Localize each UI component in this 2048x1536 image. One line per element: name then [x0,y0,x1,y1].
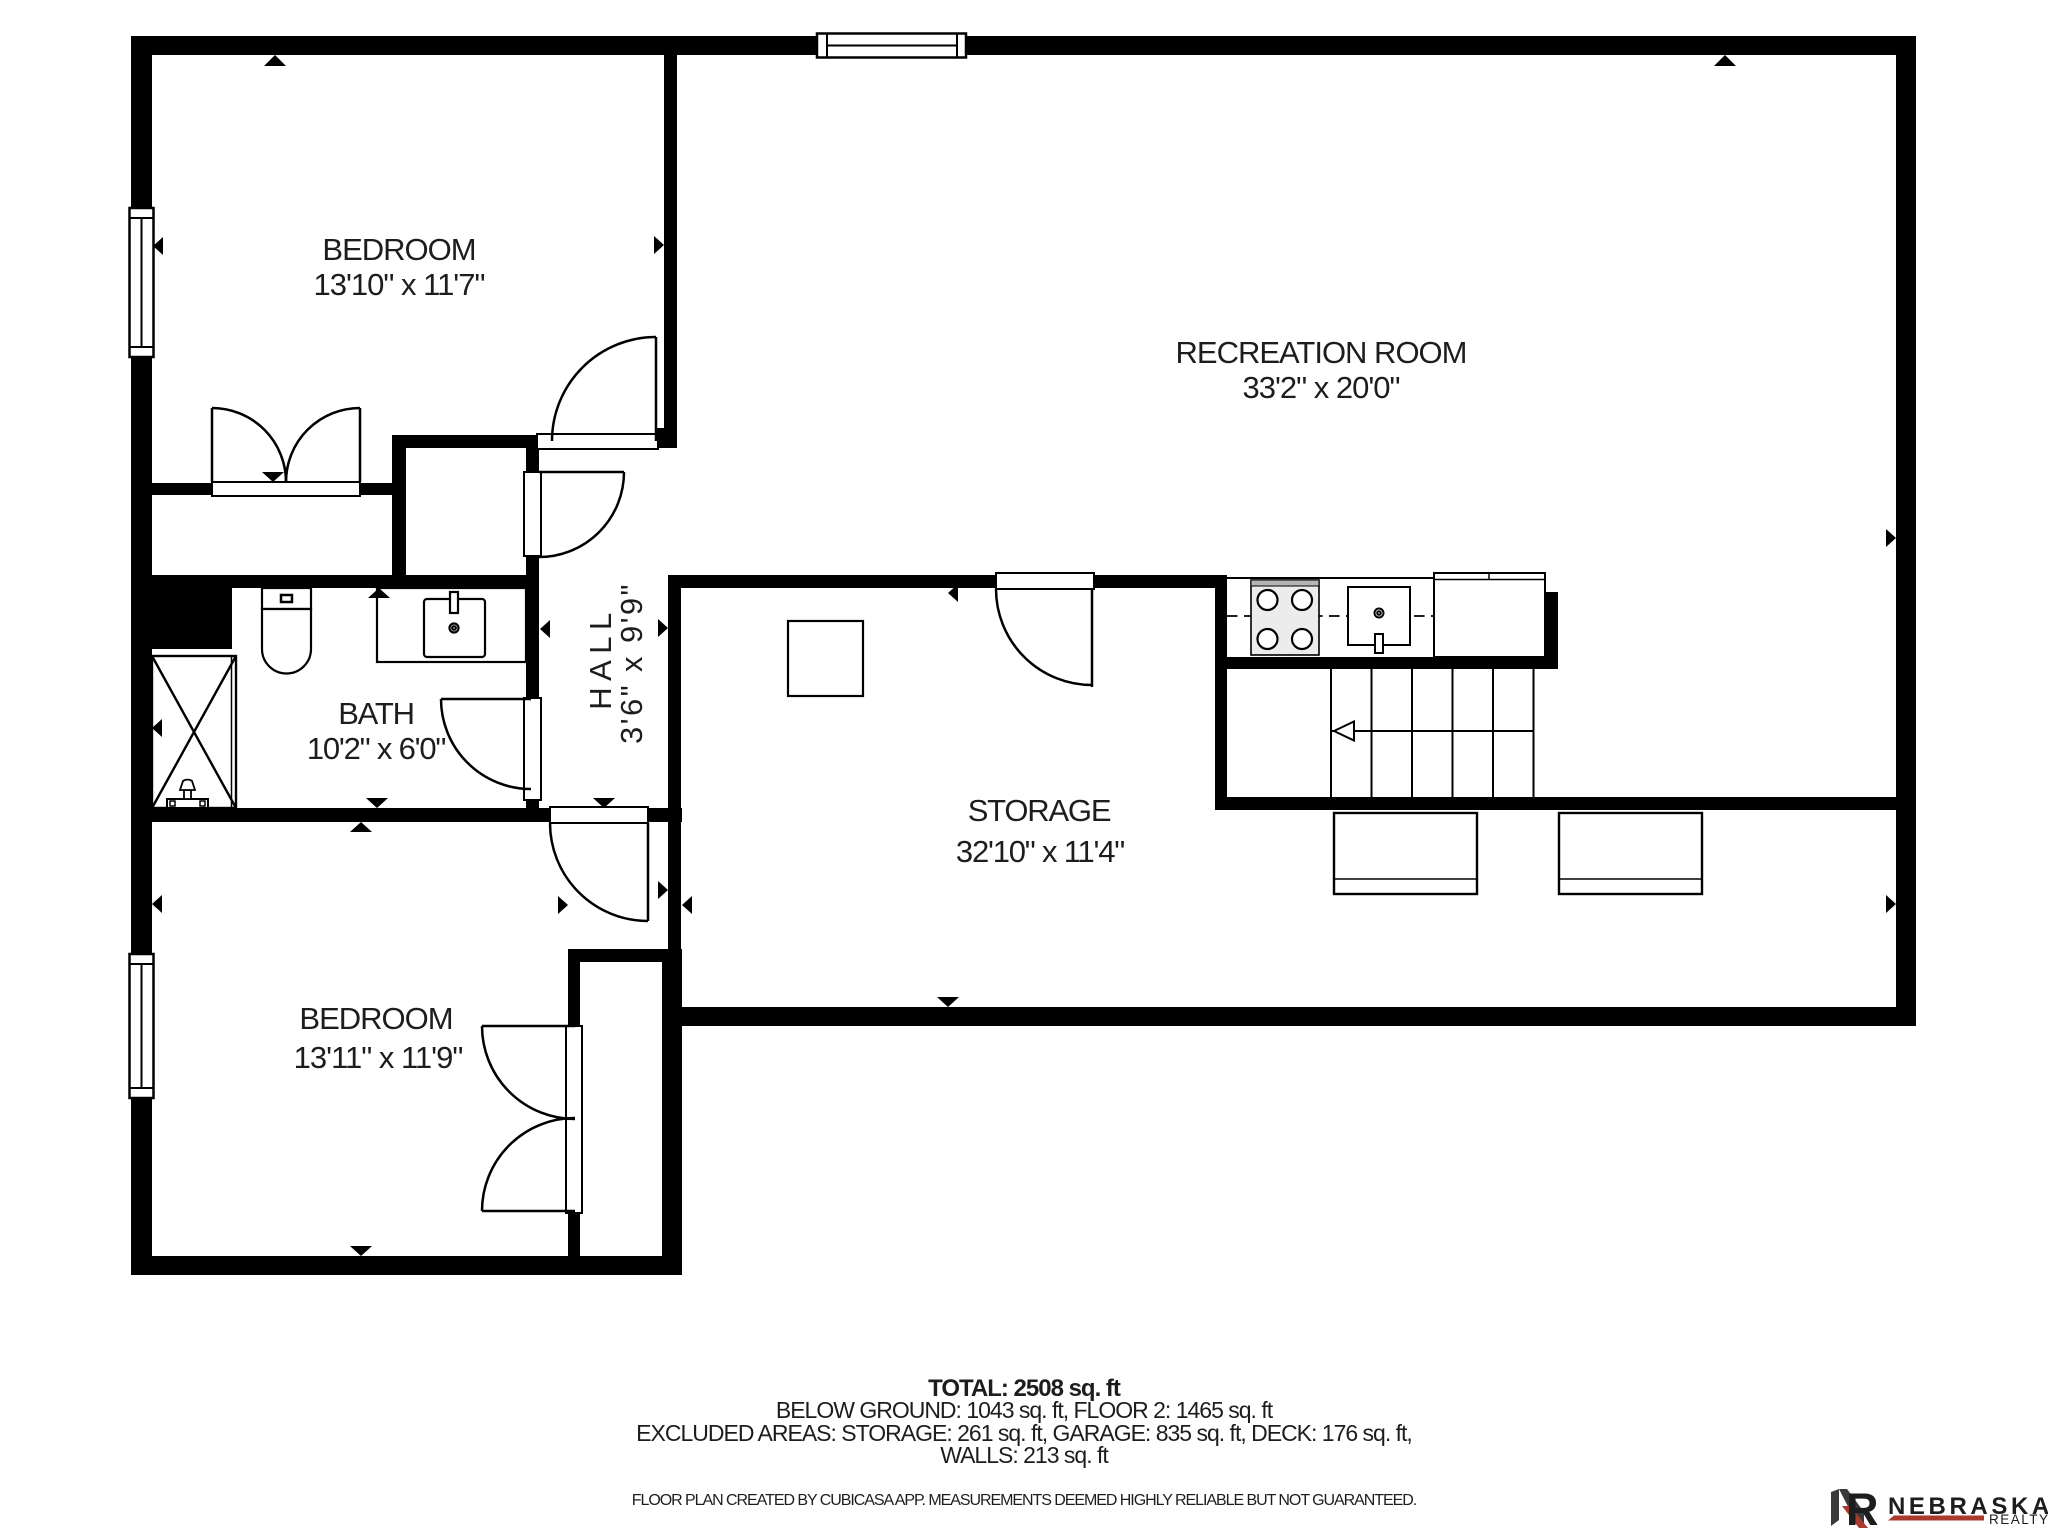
svg-text:FLOOR PLAN CREATED BY CUBICASA: FLOOR PLAN CREATED BY CUBICASA APP. MEAS… [632,1492,1416,1509]
svg-text:13'11" x 11'9": 13'11" x 11'9" [294,1040,463,1075]
svg-text:RECREATION ROOM: RECREATION ROOM [1176,335,1467,370]
svg-text:WALLS: 213 sq. ft: WALLS: 213 sq. ft [940,1442,1109,1468]
svg-text:32'10" x 11'4": 32'10" x 11'4" [956,834,1124,869]
svg-text:BEDROOM: BEDROOM [322,232,475,267]
svg-text:HALL: HALL [583,606,618,710]
svg-text:STORAGE: STORAGE [968,793,1111,828]
svg-text:13'10" x 11'7": 13'10" x 11'7" [314,267,485,302]
svg-text:BATH: BATH [338,696,414,731]
svg-text:REALTY: REALTY [1989,1512,2048,1527]
svg-text:10'2" x 6'0": 10'2" x 6'0" [307,731,446,766]
svg-text:BEDROOM: BEDROOM [299,1001,452,1036]
svg-text:R: R [1846,1484,1879,1535]
svg-text:33'2" x 20'0": 33'2" x 20'0" [1242,370,1399,405]
svg-text:3'6" x 9'9": 3'6" x 9'9" [614,582,649,744]
